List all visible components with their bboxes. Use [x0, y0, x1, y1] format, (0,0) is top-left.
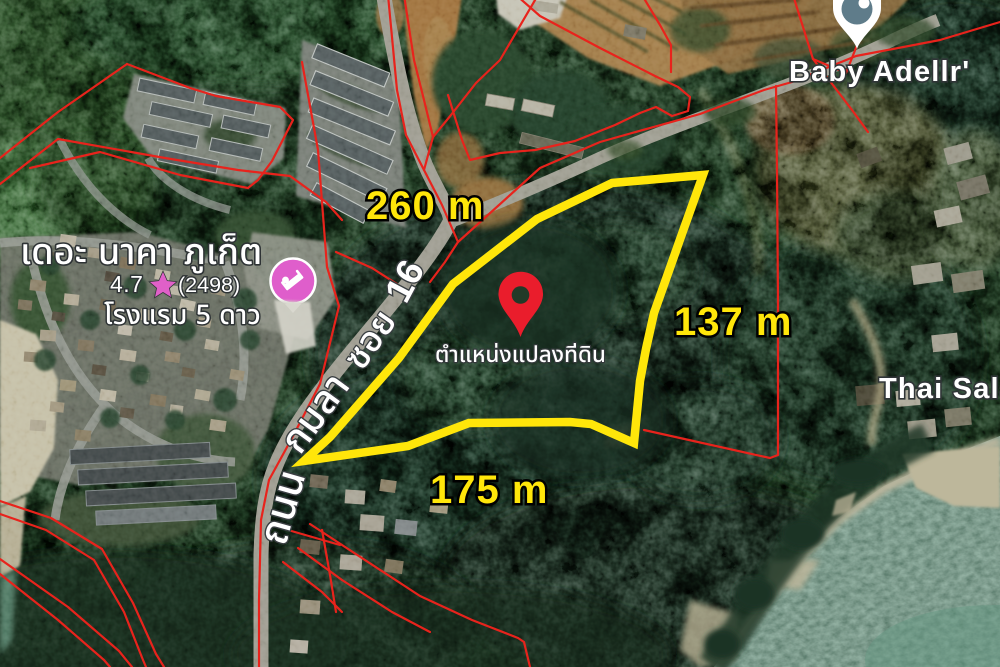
svg-text:4.7: 4.7	[110, 271, 143, 297]
svg-text:260 m: 260 m	[366, 184, 484, 228]
svg-text:137 m: 137 m	[674, 300, 792, 344]
svg-text:(2498): (2498)	[178, 273, 240, 297]
svg-text:175 m: 175 m	[430, 468, 548, 512]
svg-text:Thai Sala: Thai Sala	[879, 373, 1000, 405]
svg-text:Baby Adellr': Baby Adellr'	[789, 56, 970, 88]
